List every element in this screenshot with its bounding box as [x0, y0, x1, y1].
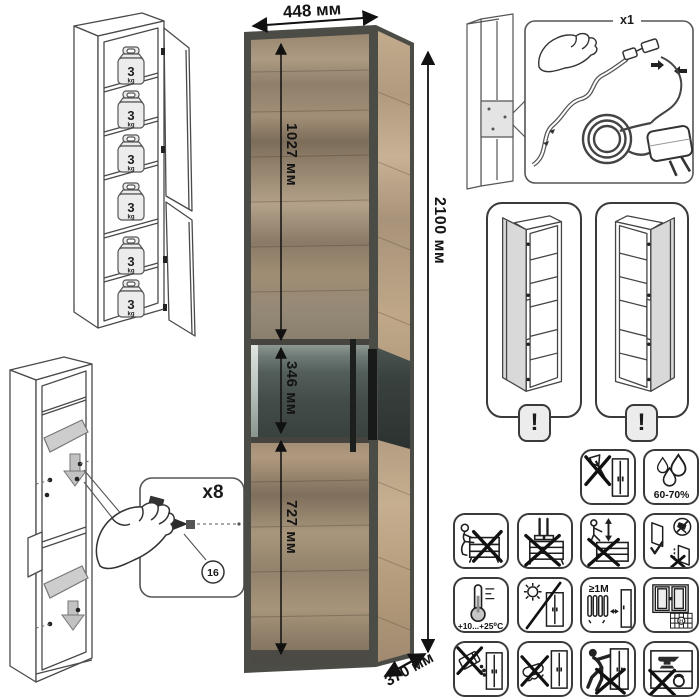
warning-badge: !	[518, 404, 551, 442]
no-sharp-tools-icon	[580, 449, 636, 505]
cabinet-side-panel	[378, 31, 410, 662]
led-strip-glow	[251, 345, 258, 437]
door-handle-upper	[350, 339, 356, 452]
svg-text:kg: kg	[127, 215, 134, 221]
svg-text:3: 3	[127, 254, 134, 269]
lower-door-dimension-label: 727 мм	[284, 500, 299, 554]
door-mounting-icon	[643, 513, 699, 569]
product-spec-sheet: 3 kg 3 kg 3 kg	[0, 0, 700, 700]
assembly-diagram: x8 16	[0, 352, 248, 700]
warning-badge: !	[625, 404, 658, 442]
hand-holding-strip	[539, 34, 597, 72]
mini-cabinet	[467, 14, 525, 189]
svg-text:kg: kg	[127, 269, 134, 275]
door-handle-lower	[368, 349, 377, 440]
door-left-cabinet	[488, 209, 580, 405]
ventilation-icon: 21	[643, 577, 699, 633]
door-option-left-panel	[486, 202, 582, 418]
power-adapter	[646, 125, 696, 180]
height-dimension-label: 2100 мм	[431, 197, 447, 264]
led-kit-diagram: x1	[455, 5, 700, 190]
svg-text:kg: kg	[127, 167, 134, 173]
svg-text:3: 3	[127, 152, 134, 167]
svg-text:≥1M: ≥1M	[588, 583, 608, 594]
door-right-cabinet	[597, 209, 689, 405]
fastener-quantity-label: x8	[202, 482, 223, 503]
no-abrasive-cleaners-icon	[453, 641, 509, 697]
no-direct-sunlight-icon	[517, 577, 573, 633]
kettlebell	[673, 674, 683, 686]
svg-text:3: 3	[127, 108, 134, 123]
width-dimension-label: 448 мм	[282, 0, 341, 23]
part-number-label: 16	[207, 567, 219, 579]
svg-text:3: 3	[127, 200, 134, 215]
svg-text:+10...+25⁰C: +10...+25⁰C	[457, 621, 502, 631]
cable-coil	[583, 115, 653, 163]
svg-text:60-70%: 60-70%	[653, 490, 688, 501]
no-climbing-icon	[580, 513, 636, 569]
no-heavy-items-icon	[643, 641, 699, 697]
svg-text:kg: kg	[127, 79, 134, 85]
max-load-diagram: 3 kg 3 kg 3 kg	[52, 6, 202, 351]
svg-text:3: 3	[127, 64, 134, 79]
svg-text:3: 3	[127, 297, 134, 312]
no-standing-icon	[517, 513, 573, 569]
svg-text:kg: kg	[127, 312, 134, 318]
no-wet-cleaning-icon	[517, 641, 573, 697]
svg-text:21: 21	[678, 618, 684, 623]
heater-distance-icon: ≥1M	[580, 577, 636, 633]
led-strip	[533, 59, 627, 165]
no-dragging-icon	[580, 641, 636, 697]
no-sitting-icon	[453, 513, 509, 569]
door-option-right-panel	[595, 202, 689, 418]
kit-quantity-label: x1	[620, 13, 634, 27]
upper-door-dimension-label: 1027 мм	[284, 123, 299, 186]
glass-section-dimension-label: 346 мм	[284, 361, 299, 415]
cabinet-product-render	[238, 12, 438, 684]
humidity-icon: 60-70%	[643, 449, 699, 505]
glass-section-side	[378, 348, 410, 449]
plinth	[251, 650, 369, 666]
temperature-range-icon: +10...+25⁰C	[453, 577, 509, 633]
svg-text:kg: kg	[127, 123, 134, 129]
